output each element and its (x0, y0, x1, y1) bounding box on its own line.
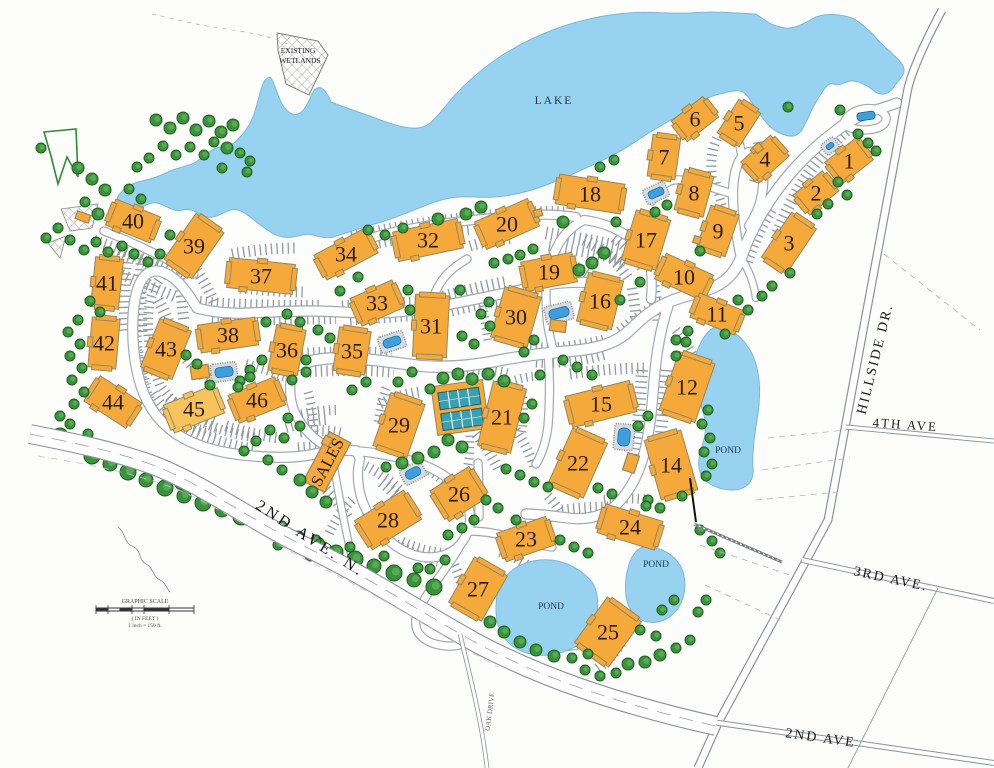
svg-text:36: 36 (276, 338, 298, 363)
svg-text:POND: POND (715, 446, 741, 456)
svg-text:( IN FEET ): ( IN FEET ) (132, 615, 159, 622)
svg-text:34: 34 (335, 242, 357, 267)
svg-text:9: 9 (713, 219, 724, 244)
svg-text:27: 27 (467, 577, 489, 602)
svg-text:LAKE: LAKE (535, 95, 574, 107)
svg-text:5: 5 (734, 111, 745, 136)
svg-text:10: 10 (673, 265, 695, 290)
svg-text:45: 45 (183, 397, 205, 422)
svg-text:17: 17 (635, 228, 657, 253)
svg-text:21: 21 (491, 405, 513, 430)
svg-text:43: 43 (155, 337, 177, 362)
svg-text:26: 26 (448, 482, 470, 507)
svg-text:POND: POND (643, 560, 669, 570)
svg-text:14: 14 (660, 453, 682, 478)
svg-text:EXISTING: EXISTING (281, 46, 316, 55)
svg-text:19: 19 (538, 260, 560, 285)
svg-text:20: 20 (496, 212, 518, 237)
svg-text:32: 32 (417, 228, 439, 253)
svg-text:3: 3 (784, 231, 795, 256)
svg-text:44: 44 (102, 390, 124, 415)
svg-text:46: 46 (246, 388, 268, 413)
svg-text:6: 6 (690, 107, 701, 132)
svg-text:15: 15 (590, 392, 612, 417)
svg-text:2: 2 (811, 181, 822, 206)
svg-text:8: 8 (689, 181, 700, 206)
svg-text:38: 38 (217, 323, 239, 348)
svg-text:POND: POND (538, 602, 564, 612)
svg-text:42: 42 (93, 331, 115, 356)
svg-text:35: 35 (341, 339, 363, 364)
svg-text:37: 37 (250, 264, 272, 289)
svg-text:12: 12 (676, 375, 698, 400)
svg-text:39: 39 (183, 234, 205, 259)
svg-text:11: 11 (706, 302, 727, 327)
svg-text:24: 24 (619, 515, 641, 540)
svg-text:22: 22 (567, 451, 589, 476)
svg-text:23: 23 (515, 527, 537, 552)
svg-text:25: 25 (597, 620, 619, 645)
svg-text:29: 29 (388, 413, 410, 438)
svg-text:31: 31 (420, 314, 442, 339)
svg-text:1: 1 (844, 149, 855, 174)
svg-text:GRAPHIC SCALE: GRAPHIC SCALE (122, 599, 169, 605)
svg-text:WETLANDS: WETLANDS (279, 56, 320, 65)
svg-text:7: 7 (659, 145, 670, 170)
svg-text:40: 40 (122, 209, 144, 234)
svg-text:1 inch = 150 ft.: 1 inch = 150 ft. (128, 622, 162, 629)
svg-text:16: 16 (589, 289, 611, 314)
svg-text:30: 30 (505, 305, 527, 330)
svg-text:33: 33 (366, 291, 388, 316)
svg-text:18: 18 (579, 182, 601, 207)
svg-text:41: 41 (96, 271, 118, 296)
svg-text:28: 28 (377, 508, 399, 533)
